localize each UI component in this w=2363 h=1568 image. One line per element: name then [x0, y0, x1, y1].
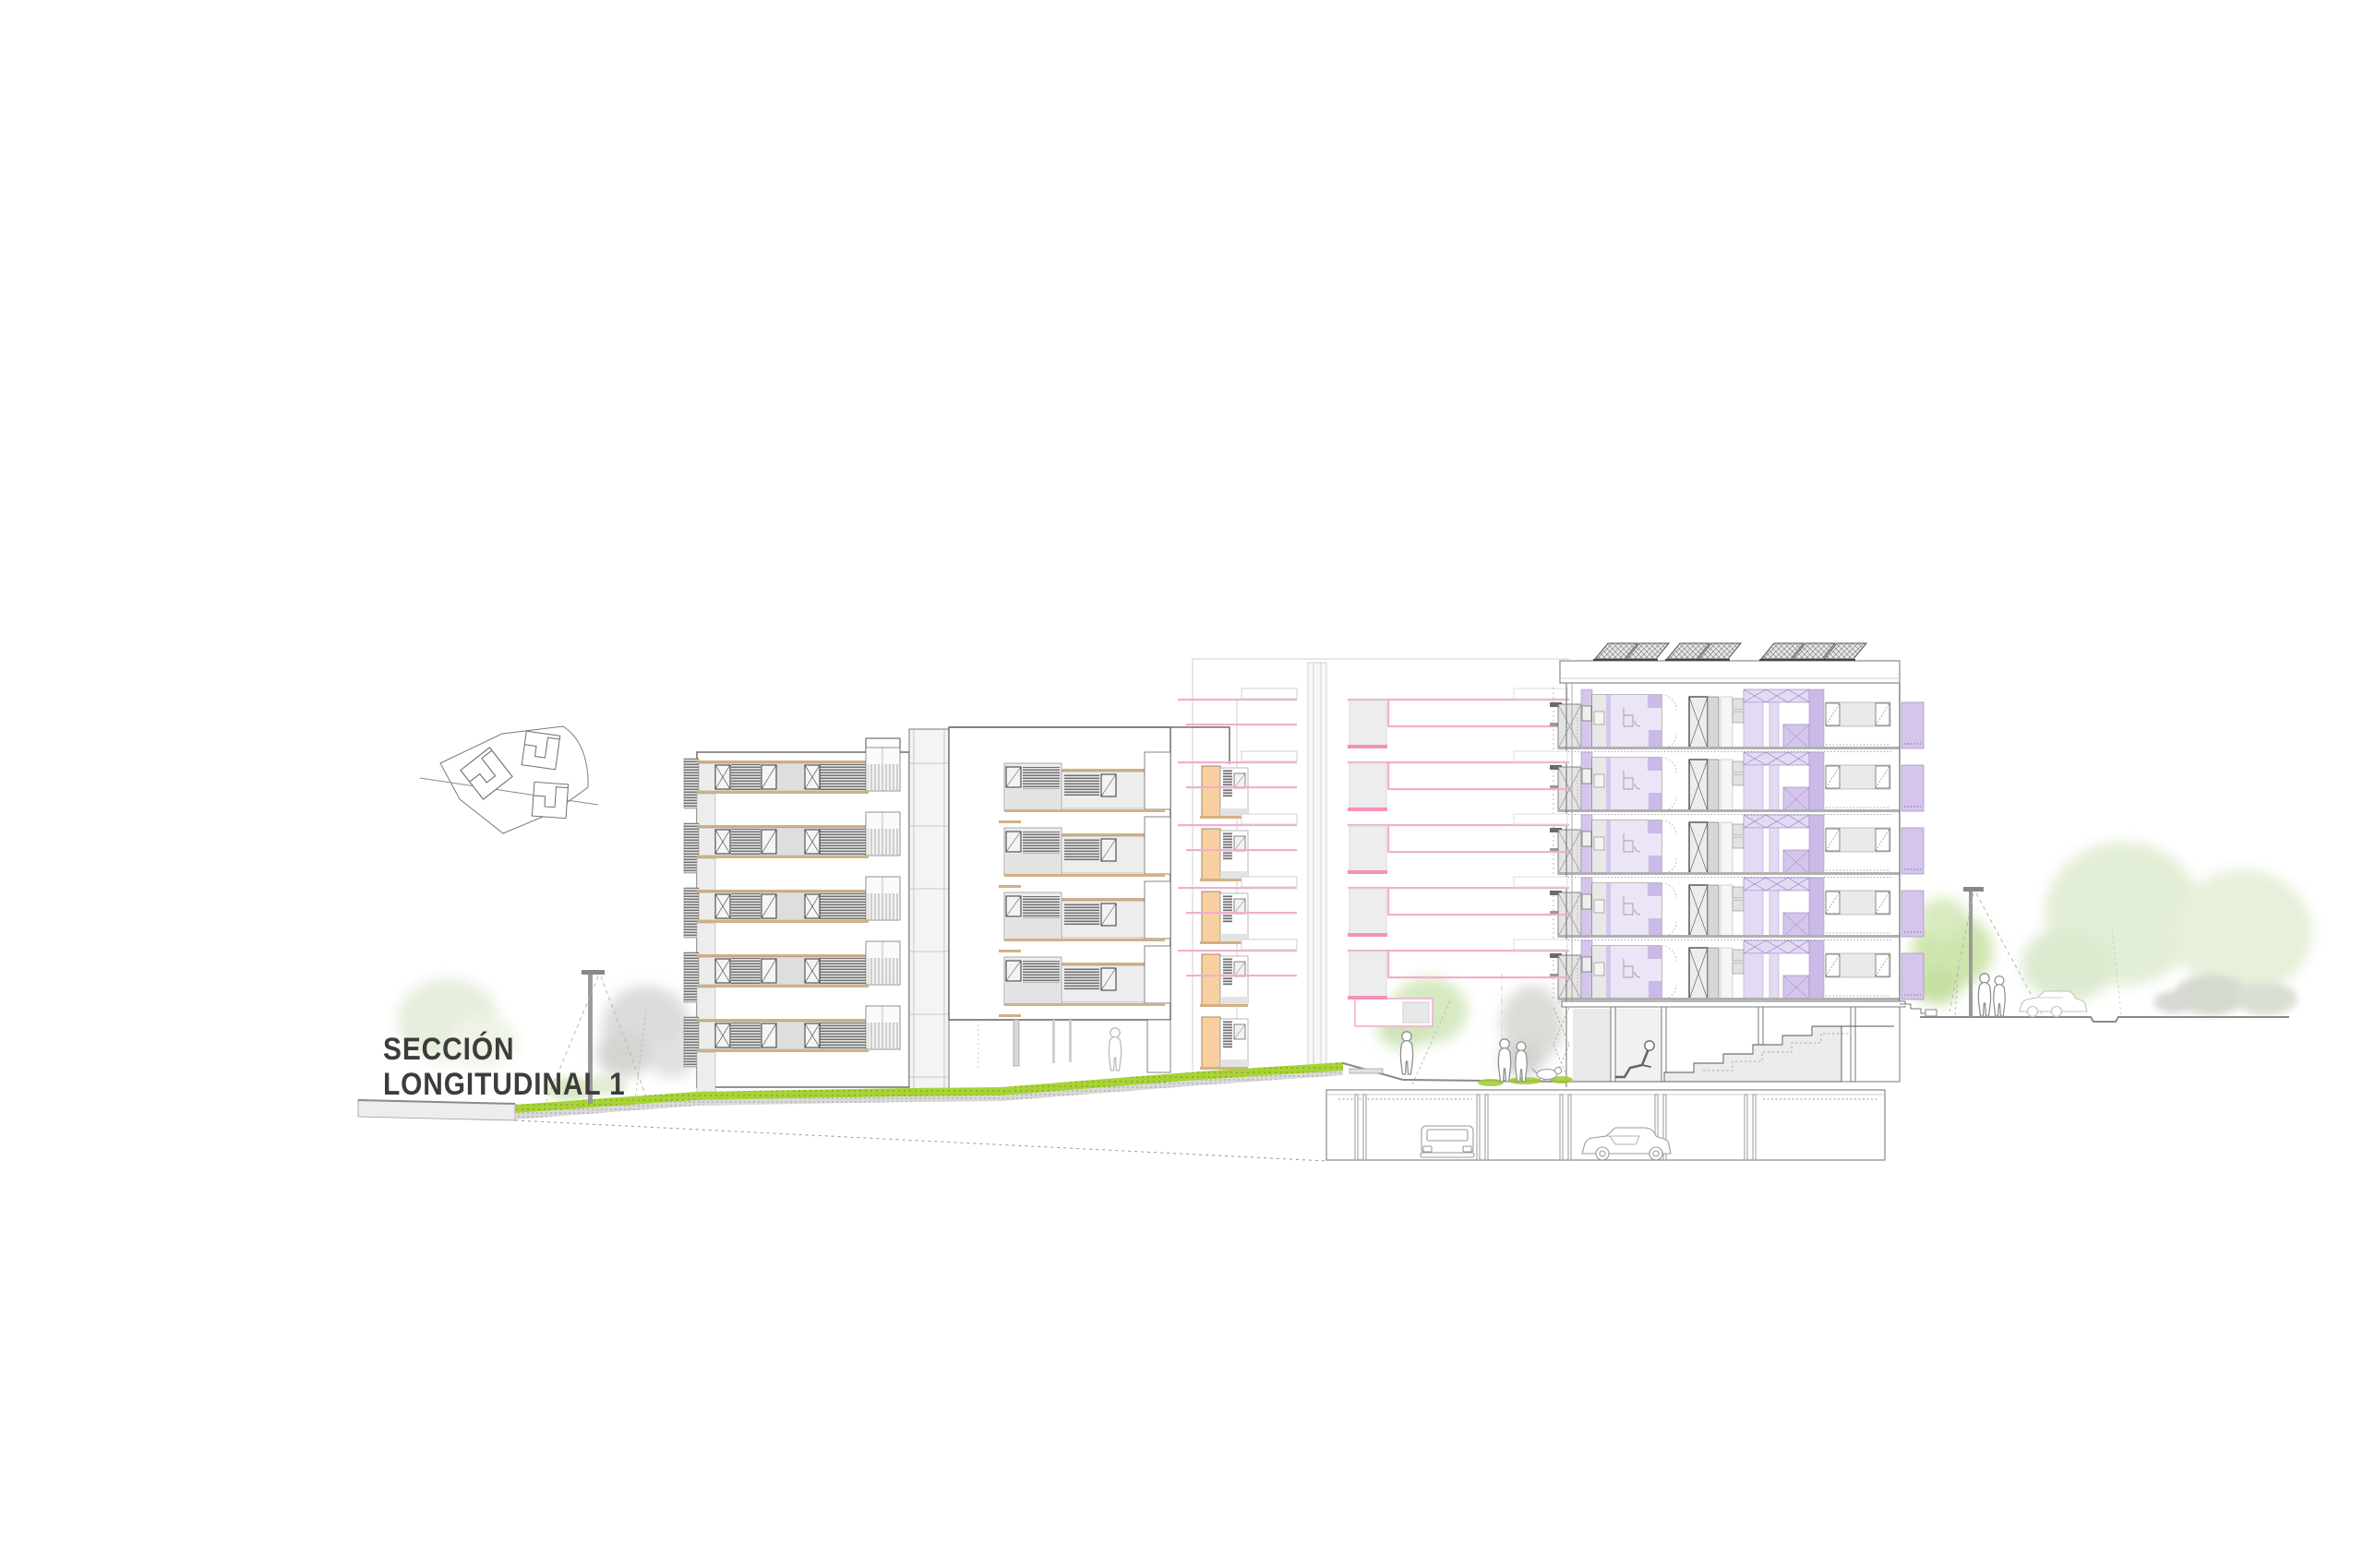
person-figure [1994, 976, 2005, 1016]
architectural-section-sheet: SECCIÓN LONGITUDINAL 1 [0, 0, 2363, 1568]
roof-parapet [1560, 661, 1900, 683]
car-front-icon [1421, 1126, 1474, 1157]
basement-parking [1326, 1090, 1885, 1160]
solar-panels [1593, 643, 1866, 660]
right-street [1920, 1017, 2289, 1022]
sectioned-floor [1550, 689, 1900, 752]
pilotis [949, 1020, 1170, 1072]
right-building [1550, 643, 1938, 1087]
ground-floor-hall [1553, 1001, 1905, 1082]
section-title-line1: SECCIÓN [383, 1031, 514, 1066]
excavation-line [515, 1120, 1326, 1161]
left-building [684, 727, 1229, 1095]
sectioned-floor [1550, 815, 1900, 878]
right-balcony-boxes [1901, 702, 1924, 999]
key-plan [420, 726, 598, 833]
sectioned-floor [1550, 878, 1900, 940]
tree-icon [596, 986, 696, 1078]
sectioned-floor [1550, 752, 1900, 815]
key-plan-block [461, 748, 512, 799]
tree-icon [2021, 842, 2312, 1001]
key-plan-block [532, 782, 568, 818]
person-figure [1109, 1028, 1121, 1071]
ground-luminaire-icon [1925, 1010, 1937, 1016]
person-figure [1498, 1039, 1510, 1082]
stair-core [909, 729, 949, 1094]
section-title-line2: LONGITUDINAL 1 [383, 1066, 626, 1101]
bench [1349, 1069, 1383, 1073]
key-plan-block [522, 731, 560, 770]
person-figure [1978, 974, 1990, 1016]
cut-balcony-unit [1200, 766, 1248, 819]
courtyard-portal-panel [1403, 1002, 1429, 1023]
person-figure [1400, 1032, 1412, 1074]
sectioned-floor [1550, 940, 1900, 1003]
section-drawing: SECCIÓN LONGITUDINAL 1 [0, 0, 2363, 1568]
